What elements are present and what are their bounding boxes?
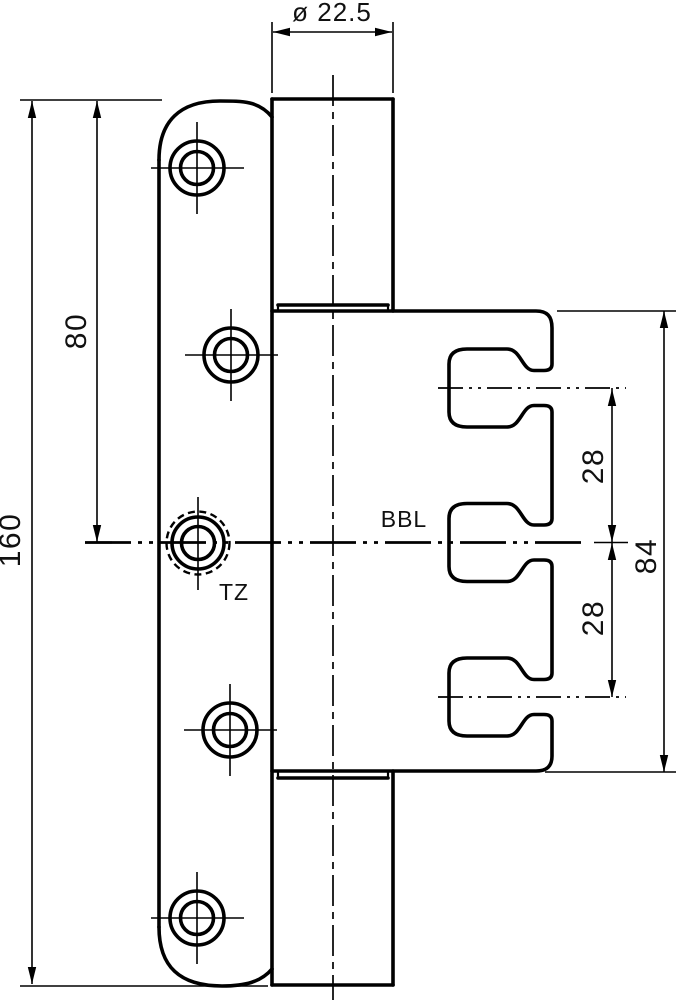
dimension-slot-pitch-lower: 28 (577, 543, 616, 698)
bbl-label: BBL (381, 506, 427, 532)
dimension-value: 160 (0, 513, 27, 568)
technical-drawing: ø 22.5 160 80 28 28 84 (0, 0, 677, 1000)
frame-leaf-outline (272, 311, 552, 771)
screw-hole-4 (184, 684, 277, 776)
dimension-value: 80 (60, 313, 93, 349)
screw-hole-1 (151, 122, 244, 214)
arrowhead-bottom (608, 680, 616, 697)
hinge-drawing-svg: ø 22.5 160 80 28 28 84 (0, 0, 677, 1000)
arrowhead-bottom (28, 967, 36, 984)
frame-leaf-comb (272, 311, 552, 771)
screw-hole-2 (185, 309, 278, 401)
arrowhead-top (28, 101, 36, 118)
arrowhead-top (93, 101, 101, 118)
dimension-value: 28 (577, 448, 610, 484)
arrowhead-right (375, 28, 392, 36)
arrowhead-top (660, 311, 668, 328)
arrowhead-bottom (660, 755, 668, 772)
arrowhead-left (273, 28, 290, 36)
dimension-pivot-offset: 80 (60, 101, 112, 543)
dimension-value: 84 (630, 538, 663, 574)
tz-label: TZ (219, 579, 249, 605)
arrowhead-top (608, 543, 616, 560)
arrowhead-top (608, 389, 616, 406)
arrowhead-bottom (608, 525, 616, 542)
dimension-value: 28 (577, 600, 610, 636)
screw-hole-5 (151, 872, 244, 964)
dimension-value: ø 22.5 (292, 0, 372, 27)
arrowhead-bottom (93, 525, 101, 542)
dimension-slot-pitch-upper: 28 (577, 388, 628, 543)
